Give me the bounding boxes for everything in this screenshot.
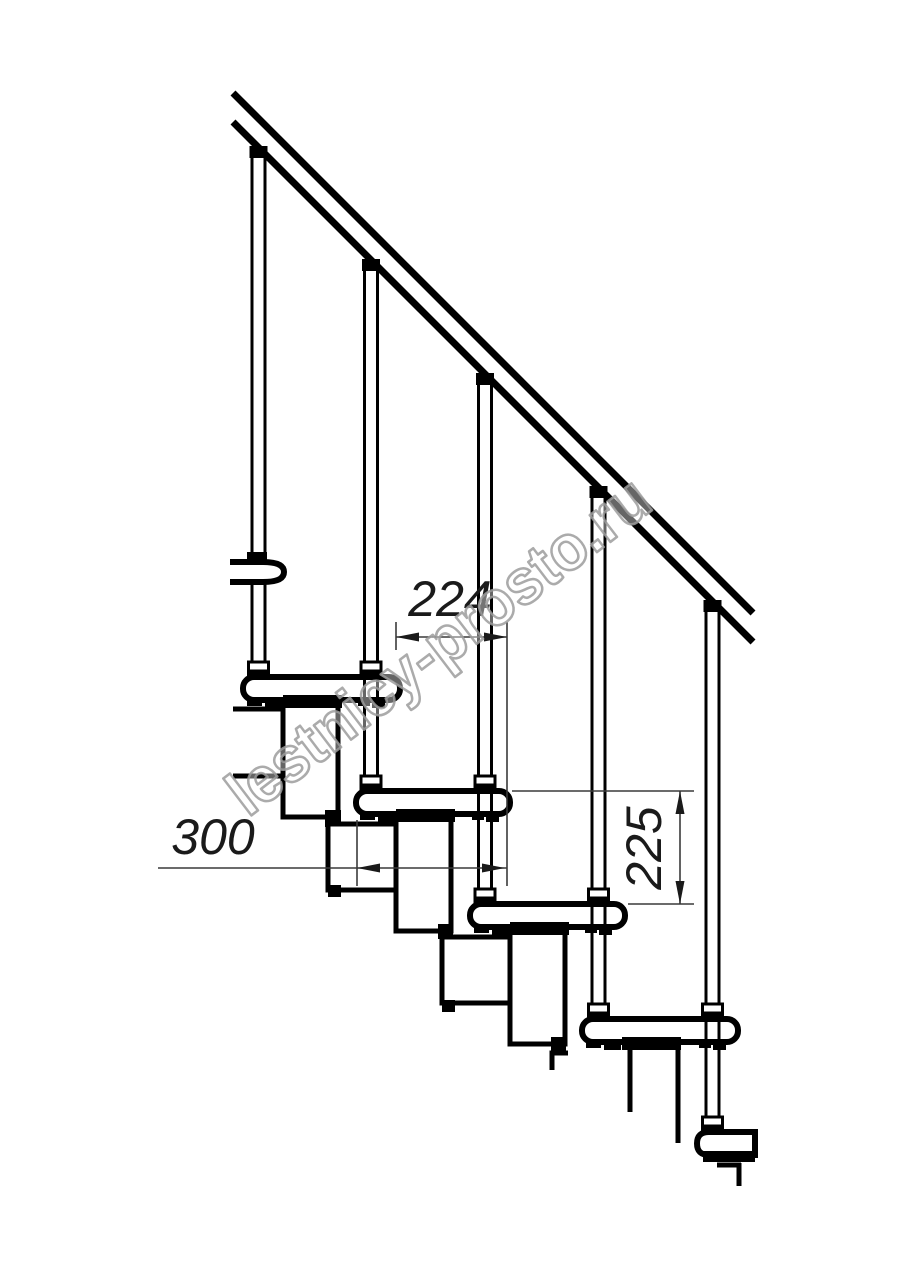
arrow-up-icon [676,791,685,814]
module-stub [442,1000,455,1012]
arrow-right-icon [482,864,505,873]
tread-module-strip [622,1037,681,1050]
baluster-1 [247,146,270,678]
tread-module-strip [703,1151,755,1162]
tread-module-strip [510,922,569,935]
tread-module-strip [396,809,455,822]
dim-rise-label: 225 [616,806,672,891]
baluster-collar [361,776,381,785]
dim-depth-label: 300 [171,809,255,865]
module-front-2 [396,819,451,931]
baluster-collar [589,1004,609,1013]
module-rear-5-cut [717,1163,741,1186]
tread-connector [360,784,383,792]
module-rear-3 [442,937,519,1003]
staircase-drawing-page: 224 300 225 lestnicy-prosto.ru [0,0,914,1280]
baluster-collar [703,1004,723,1013]
upper-flight-fragment [230,552,284,582]
baluster-collar [703,1117,723,1126]
baluster-collar [249,662,269,671]
watermark-text: lestnicy-prosto.ru [213,462,664,830]
module-rear-4-cut [552,1053,568,1070]
module-stub [328,885,341,897]
module-front-3 [510,932,565,1044]
baluster-collar [589,889,609,898]
tread-connector [701,1125,724,1133]
tread-connector [587,897,610,905]
end-view-tread [230,562,284,582]
tread-connector [587,1012,610,1020]
baluster-collar [475,776,495,785]
baluster-5 [701,600,724,1133]
watermark: lestnicy-prosto.ru [213,462,664,830]
tread-connector [247,670,270,678]
tread-connector [474,897,497,905]
tread-connector [474,784,497,792]
dimension-225: 225 [512,791,694,904]
baluster-collar [475,889,495,898]
tread-connector [701,1012,724,1020]
staircase-drawing: 224 300 225 lestnicy-prosto.ru [0,0,914,1280]
module-rear-2 [328,824,405,890]
arrow-down-icon [676,881,685,904]
